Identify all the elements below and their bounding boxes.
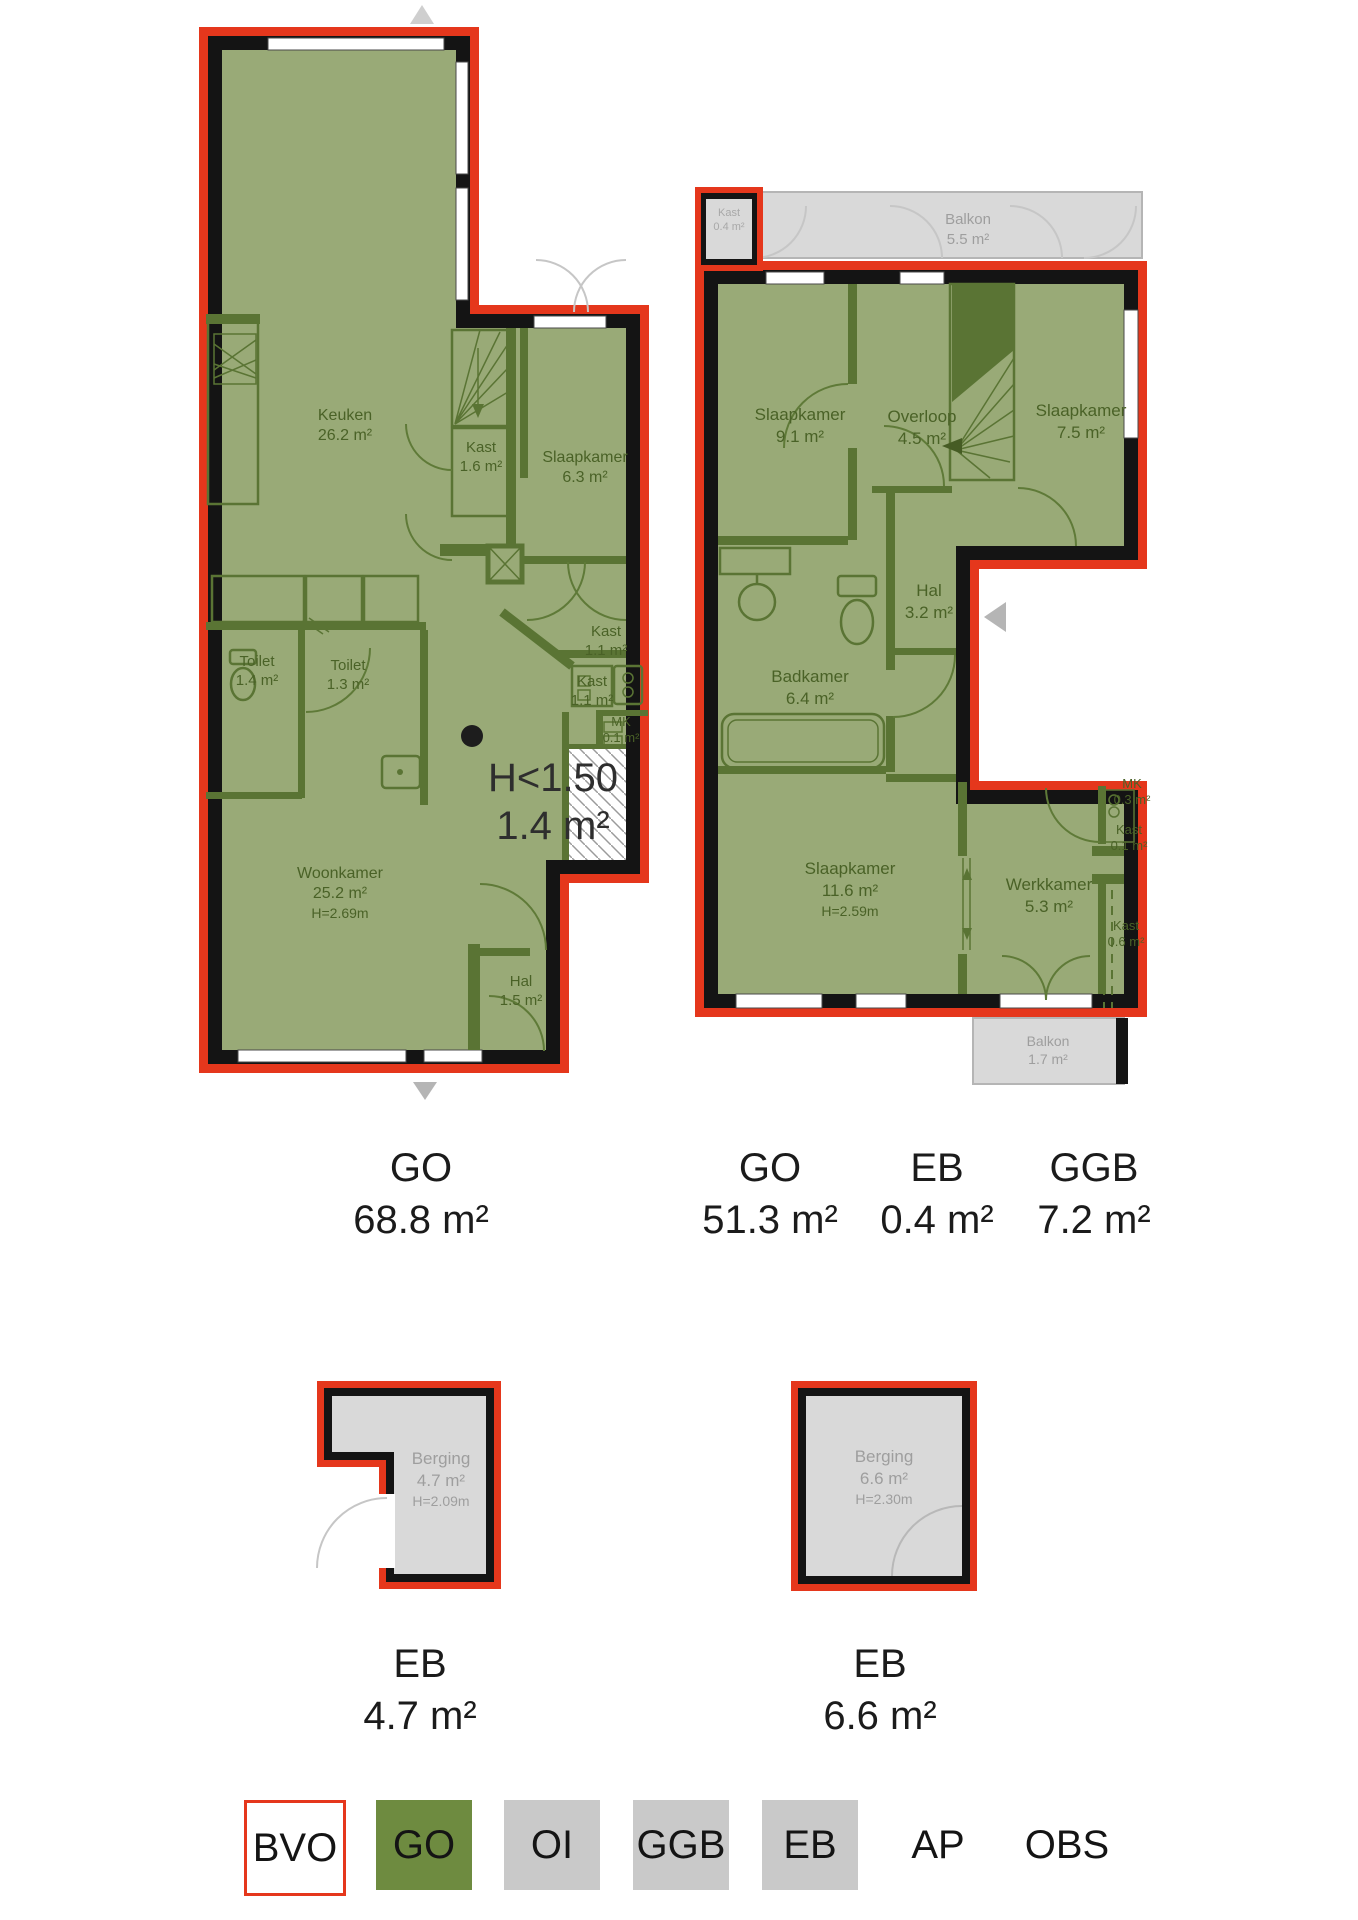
window bbox=[856, 994, 906, 1008]
room-label-kast: Kast1.1 m² bbox=[571, 672, 614, 710]
room-label-kast: Kast1.1 m² bbox=[585, 622, 628, 660]
room-label-toilet: Toilet1.4 m² bbox=[236, 652, 279, 690]
area-summary-go-2: GO51.3 m² bbox=[702, 1142, 838, 1246]
room-label-kast-exterior: Kast0.4 m² bbox=[713, 206, 744, 235]
room-label-badkamer: Badkamer6.4 m² bbox=[771, 666, 848, 710]
window bbox=[456, 188, 468, 300]
legend-item-oi: OI bbox=[504, 1800, 600, 1890]
area-summary-eb: EB0.4 m² bbox=[880, 1142, 993, 1246]
legend-item-bvo: BVO bbox=[244, 1800, 346, 1896]
column bbox=[461, 725, 483, 747]
low-ceiling-note: H<1.501.4 m² bbox=[488, 754, 618, 850]
room-label-berging-1: Berging4.7 m² H=2.09m bbox=[412, 1448, 471, 1510]
room-label-hal: Hal3.2 m² bbox=[905, 580, 953, 624]
door-opening bbox=[378, 1494, 395, 1568]
door-opening bbox=[534, 316, 606, 328]
floorplan-canvas bbox=[0, 0, 1358, 1920]
window bbox=[900, 272, 944, 284]
orientation-arrow bbox=[410, 5, 434, 24]
window bbox=[238, 1050, 406, 1062]
floorplan-first-floor bbox=[206, 5, 648, 1100]
area-summary-eb-1: EB4.7 m² bbox=[363, 1638, 476, 1742]
room-label-slaapkamer: Slaapkamer11.6 m² H=2.59m bbox=[805, 858, 896, 920]
room-label-slaapkamer: Slaapkamer6.3 m² bbox=[542, 448, 627, 489]
room-label-kast: Kast0.1 m² bbox=[1111, 822, 1148, 855]
room-label-werkkamer: Werkkamer5.3 m² bbox=[1006, 874, 1093, 918]
area-summary-go-1: GO68.8 m² bbox=[353, 1142, 489, 1246]
room-label-mk: MK0.1 m² bbox=[603, 714, 640, 747]
room-label-berging-2: Berging6.6 m² H=2.30m bbox=[855, 1446, 914, 1508]
area-summary-ggb: GGB7.2 m² bbox=[1037, 1142, 1150, 1246]
room-label-balkon: Balkon5.5 m² bbox=[945, 210, 991, 249]
window bbox=[736, 994, 822, 1008]
area-summary-eb-2: EB6.6 m² bbox=[823, 1638, 936, 1742]
room-label-slaapkamer: Slaapkamer7.5 m² bbox=[1036, 400, 1127, 444]
legend-item-eb: EB bbox=[762, 1800, 858, 1890]
entrance-arrow bbox=[984, 602, 1006, 632]
legend-item-go: GO bbox=[376, 1800, 472, 1890]
room-label-toilet: Toilet1.3 m² bbox=[327, 656, 370, 694]
entrance-arrow bbox=[413, 1082, 437, 1100]
room-label-kast: Kast0.6 m² bbox=[1108, 918, 1145, 951]
room-label-keuken: Keuken26.2 m² bbox=[318, 406, 372, 447]
legend-item-ap: AP bbox=[890, 1800, 986, 1890]
window bbox=[766, 272, 824, 284]
room-label-mk: MK0.3 m² bbox=[1114, 776, 1151, 809]
legend-item-obs: OBS bbox=[1019, 1800, 1115, 1890]
room-label-kast: Kast1.6 m² bbox=[460, 438, 503, 476]
window bbox=[268, 38, 444, 50]
window bbox=[424, 1050, 482, 1062]
door-arc bbox=[317, 1498, 387, 1568]
door-arc bbox=[574, 260, 626, 312]
room-label-balkon: Balkon1.7 m² bbox=[1027, 1032, 1070, 1068]
room-label-hal: Hal1.5 m² bbox=[500, 972, 543, 1010]
room-label-woonkamer: Woonkamer25.2 m² H=2.69m bbox=[297, 864, 383, 923]
legend-item-ggb: GGB bbox=[633, 1800, 729, 1890]
room-label-overloop: Overloop4.5 m² bbox=[888, 406, 957, 450]
window bbox=[456, 62, 468, 174]
room-label-slaapkamer: Slaapkamer9.1 m² bbox=[755, 404, 846, 448]
floorplan-second-floor bbox=[698, 190, 1142, 1084]
